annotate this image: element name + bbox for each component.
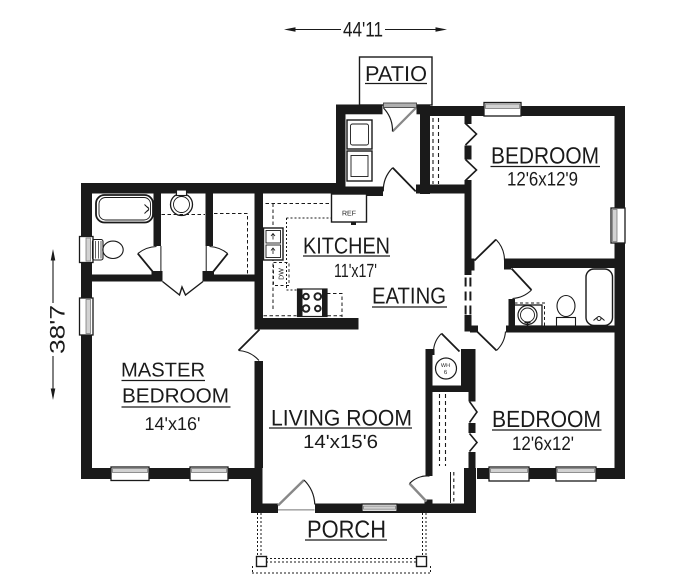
svg-text:38'7: 38'7 <box>47 305 70 354</box>
svg-text:BEDROOM: BEDROOM <box>492 406 601 432</box>
svg-text:12'6x12': 12'6x12' <box>512 433 574 455</box>
svg-text:11'x17': 11'x17' <box>334 261 377 282</box>
svg-text:LIVING ROOM: LIVING ROOM <box>271 406 412 431</box>
svg-text:KITCHEN: KITCHEN <box>303 233 390 259</box>
svg-text:DW: DW <box>279 268 286 280</box>
svg-text:WH: WH <box>441 363 450 369</box>
svg-text:14'x16': 14'x16' <box>145 413 201 434</box>
svg-text:MASTER: MASTER <box>121 360 205 382</box>
svg-text:REF: REF <box>342 211 356 218</box>
svg-text:14'x15'6: 14'x15'6 <box>303 432 378 453</box>
svg-text:BEDROOM: BEDROOM <box>491 143 599 169</box>
svg-text:BEDROOM: BEDROOM <box>122 385 229 408</box>
svg-text:PATIO: PATIO <box>365 62 427 86</box>
svg-text:EATING: EATING <box>372 283 446 309</box>
svg-text:44'11: 44'11 <box>343 19 383 42</box>
svg-text:12'6x12'9: 12'6x12'9 <box>507 169 578 191</box>
